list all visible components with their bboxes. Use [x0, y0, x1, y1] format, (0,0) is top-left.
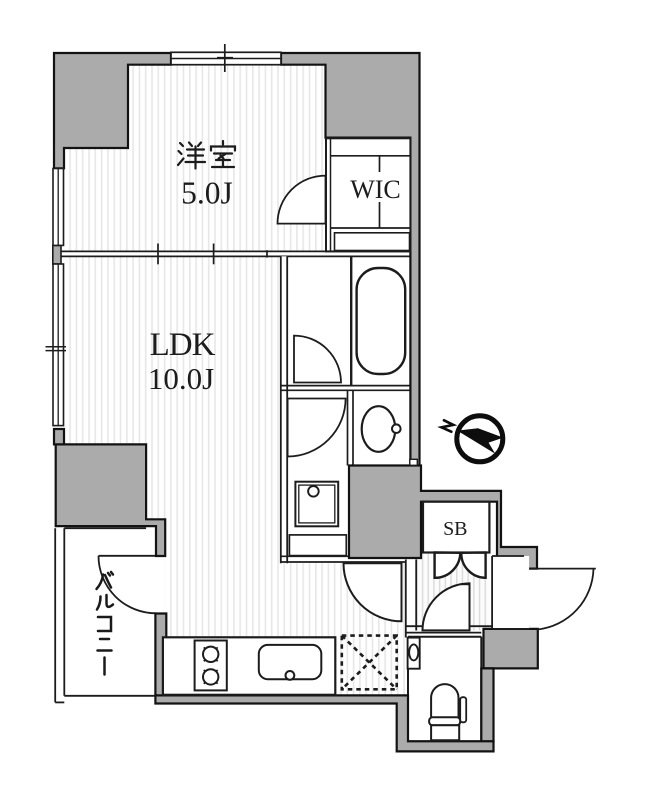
svg-text:5.0J: 5.0J: [181, 176, 233, 211]
svg-text:SB: SB: [443, 518, 467, 540]
svg-text:LDK: LDK: [150, 327, 216, 363]
svg-text:WIC: WIC: [350, 175, 401, 204]
svg-text:10.0J: 10.0J: [148, 361, 214, 396]
